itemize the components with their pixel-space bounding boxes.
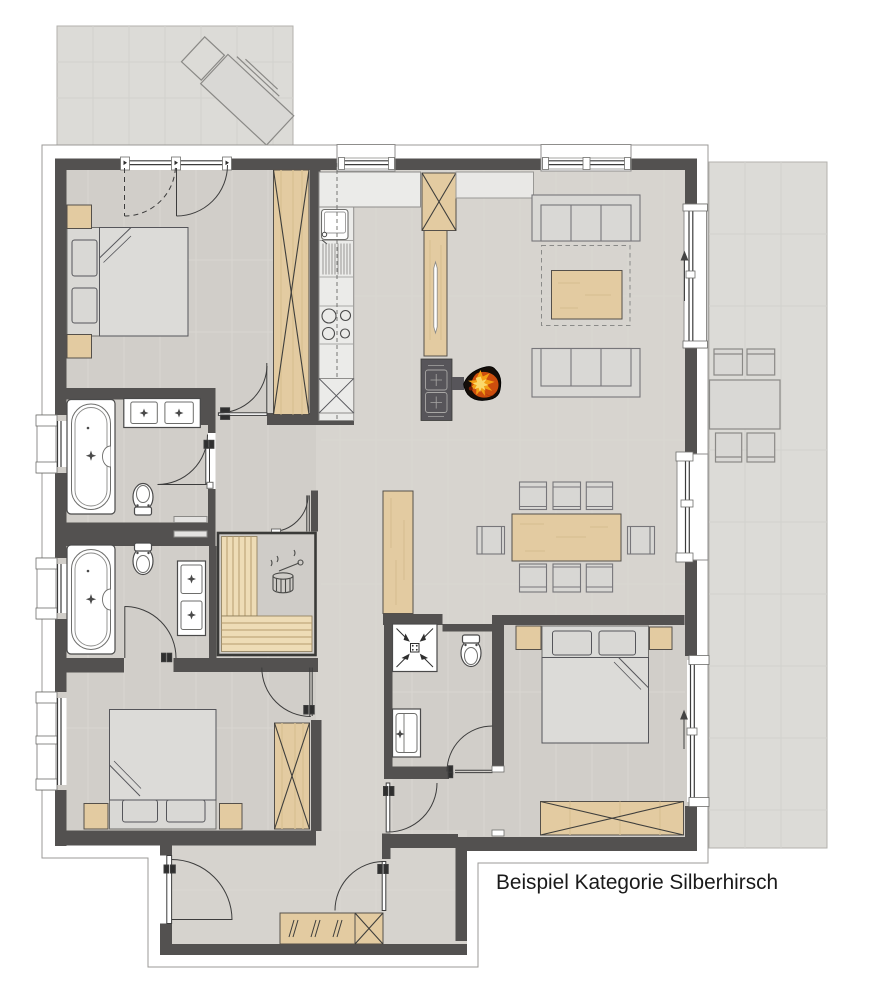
- svg-text:Beispiel Kategorie Silberhirsc: Beispiel Kategorie Silberhirsch: [496, 871, 778, 894]
